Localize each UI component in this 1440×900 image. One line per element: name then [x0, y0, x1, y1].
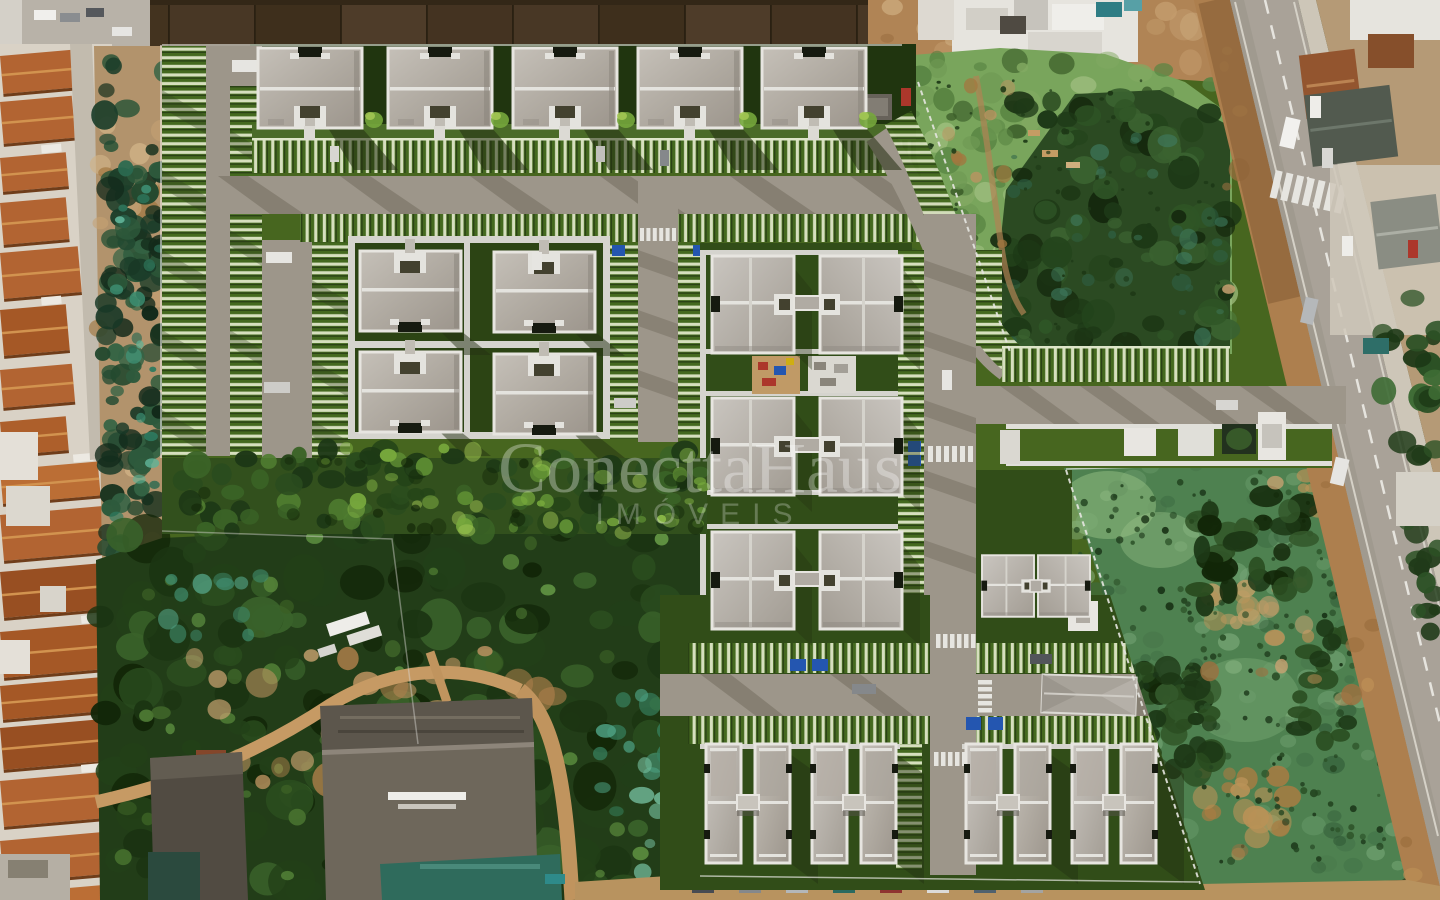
svg-text:IMÓVEIS: IMÓVEIS	[595, 498, 804, 531]
svg-text:ConecttaHaus: ConecttaHaus	[498, 428, 902, 508]
